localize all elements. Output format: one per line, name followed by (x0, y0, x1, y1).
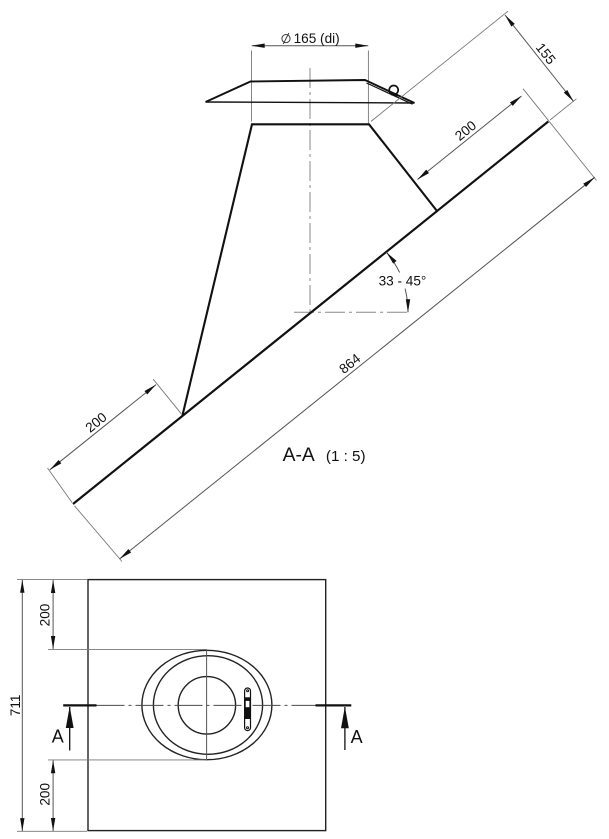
svg-text:200: 200 (83, 409, 110, 435)
svg-text:A-A: A-A (283, 445, 315, 466)
svg-text:33 - 45°: 33 - 45° (379, 274, 427, 289)
svg-text:200: 200 (38, 783, 53, 806)
svg-text:200: 200 (38, 603, 53, 626)
svg-text:A: A (351, 727, 363, 747)
svg-text:155: 155 (533, 40, 559, 67)
svg-text:864: 864 (336, 351, 363, 377)
svg-text:711: 711 (8, 695, 23, 717)
svg-text:A: A (52, 727, 64, 747)
svg-text:165 (di): 165 (di) (294, 31, 340, 46)
svg-text:200: 200 (452, 118, 479, 144)
svg-text:(1 : 5): (1 : 5) (326, 448, 366, 465)
